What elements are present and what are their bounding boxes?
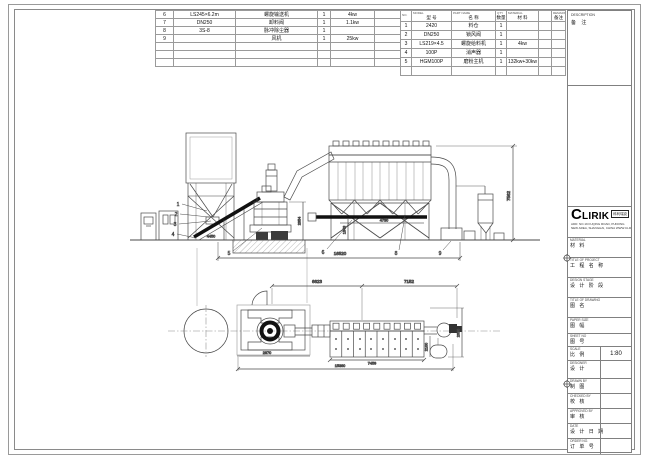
parts-table-right: NO.MODEL型 号PART NAME名 称QTY数量MATERIAL材 料R… xyxy=(400,10,566,76)
titleblock-row-date: DATE 设 计 日 期 xyxy=(568,424,631,439)
parts-cell: 3 xyxy=(401,40,412,49)
parts-cell: 5 xyxy=(401,58,412,67)
parts-cell: 4kw xyxy=(331,11,375,19)
parts-header-cell xyxy=(539,11,552,22)
parts-cell: LS219×4.5 xyxy=(412,40,452,49)
scale-value: 1:80 xyxy=(600,347,631,360)
parts-cell xyxy=(236,59,318,67)
clirik-logo: CLIRIK xyxy=(571,209,609,223)
parts-cell xyxy=(552,49,566,58)
parts-cell: 3S-8 xyxy=(174,27,236,35)
titleblock-row-drawn-by: DRAWN BY 制 图 xyxy=(568,379,631,394)
parts-cell xyxy=(174,51,236,59)
parts-cell: 4kw xyxy=(507,40,539,49)
parts-cell: 1 xyxy=(401,22,412,31)
parts-cell: 25kw xyxy=(331,35,375,43)
parts-cell: 螺旋输送机 xyxy=(236,11,318,19)
parts-cell xyxy=(539,58,552,67)
parts-row-right xyxy=(401,67,566,76)
parts-cell xyxy=(375,11,401,19)
parts-cell xyxy=(375,19,401,27)
parts-cell xyxy=(375,27,401,35)
parts-cell xyxy=(236,43,318,51)
parts-row-right: 12420料仓1 xyxy=(401,22,566,31)
parts-cell xyxy=(331,51,375,59)
parts-cell: 132kw+30kw xyxy=(507,58,539,67)
parts-cell xyxy=(507,22,539,31)
parts-cell: 脉冲除尘器 xyxy=(236,27,318,35)
parts-cell: LS245×6.2m xyxy=(174,11,236,19)
parts-cell: 6 xyxy=(156,11,174,19)
parts-cell: 100P xyxy=(412,49,452,58)
parts-row-left: 6LS245×6.2m螺旋输送机14kw xyxy=(156,11,401,19)
parts-cell: 磨粉主机 xyxy=(452,58,496,67)
parts-cell xyxy=(375,43,401,51)
parts-cell xyxy=(375,51,401,59)
parts-row-left xyxy=(156,43,401,51)
company-address-line2: NEW AREA, SHANGHAI, CHINA WWW.CLIRIK.COM xyxy=(568,227,631,231)
parts-cell: 1 xyxy=(496,49,507,58)
parts-cell xyxy=(552,22,566,31)
parts-cell: 消声器 xyxy=(452,49,496,58)
parts-cell: 1 xyxy=(318,27,331,35)
parts-cell xyxy=(174,43,236,51)
parts-row-left: 7DN250卸料阀11.1kw xyxy=(156,19,401,27)
parts-header-cell: QTY数量 xyxy=(496,11,507,22)
parts-row-right: 2DN250锁风阀1 xyxy=(401,31,566,40)
parts-cell: 1 xyxy=(496,40,507,49)
titleblock-row-order-no: ORDER NO. 订 单 号 xyxy=(568,439,631,454)
parts-cell xyxy=(318,51,331,59)
parts-cell: 料仓 xyxy=(452,22,496,31)
parts-cell xyxy=(539,49,552,58)
parts-cell: 锁风阀 xyxy=(452,31,496,40)
parts-row-left xyxy=(156,59,401,67)
parts-cell xyxy=(552,31,566,40)
parts-cell: 1 xyxy=(318,35,331,43)
titleblock-row-project: TITLE OF PROJECT 工 程 名 称 xyxy=(568,258,631,278)
parts-cell xyxy=(552,67,566,76)
parts-row-left xyxy=(156,51,401,59)
parts-row-left: 83S-8脉冲除尘器1 xyxy=(156,27,401,35)
parts-cell xyxy=(174,59,236,67)
parts-header-cell: PART NAME名 称 xyxy=(452,11,496,22)
parts-header-cell: NO. xyxy=(401,11,412,22)
parts-cell xyxy=(331,27,375,35)
parts-row-right: 5HGM100P磨粉主机1132kw+30kw xyxy=(401,58,566,67)
parts-cell xyxy=(174,35,236,43)
parts-cell xyxy=(452,67,496,76)
logo-box: CLIRIK 科利瑞克 ADD: NO.19 FUQING ROAD, PUDO… xyxy=(568,207,631,238)
parts-header-row: NO.MODEL型 号PART NAME名 称QTY数量MATERIAL材 料R… xyxy=(401,11,566,22)
titleblock-row-material: MATERIAL 材 料 xyxy=(568,238,631,258)
parts-cell xyxy=(318,43,331,51)
parts-cell xyxy=(507,49,539,58)
title-block-spacer xyxy=(568,86,631,207)
parts-cell xyxy=(507,67,539,76)
titleblock-row-drawing-title: TITLE OF DRAWING 图 名 xyxy=(568,298,631,318)
parts-row-right: 4100P消声器1 xyxy=(401,49,566,58)
parts-cell: 风机 xyxy=(236,35,318,43)
parts-cell xyxy=(539,67,552,76)
description-box: DESCRIPTION 备 注 xyxy=(568,11,631,86)
parts-cell xyxy=(375,59,401,67)
parts-cell: 9 xyxy=(156,35,174,43)
parts-cell xyxy=(318,59,331,67)
parts-cell: 螺旋给料机 xyxy=(452,40,496,49)
parts-cell xyxy=(552,40,566,49)
parts-cell: 7 xyxy=(156,19,174,27)
parts-cell: 1 xyxy=(496,31,507,40)
parts-cell: 2 xyxy=(401,31,412,40)
titleblock-row-scale: SCALE 比 例 1:80 xyxy=(568,347,631,361)
parts-cell xyxy=(236,51,318,59)
parts-cell: DN250 xyxy=(412,31,452,40)
parts-cell xyxy=(331,59,375,67)
drawing-sheet: 6LS245×6.2m螺旋输送机14kw7DN250卸料阀11.1kw83S-8… xyxy=(0,0,650,460)
description-label-cn: 备 注 xyxy=(571,19,628,26)
parts-cell xyxy=(156,59,174,67)
title-block: DESCRIPTION 备 注 CLIRIK 科利瑞克 ADD: NO.19 F… xyxy=(567,10,632,453)
parts-cell xyxy=(401,67,412,76)
parts-cell: 1 xyxy=(318,19,331,27)
parts-cell: 1 xyxy=(496,58,507,67)
parts-cell xyxy=(539,22,552,31)
parts-cell xyxy=(507,31,539,40)
parts-cell xyxy=(539,31,552,40)
titleblock-row-approved-by: APPROVED BY 审 核 xyxy=(568,409,631,424)
parts-cell xyxy=(552,58,566,67)
titleblock-row-checked-by: CHECKED BY 校 核 xyxy=(568,394,631,409)
parts-cell: 8 xyxy=(156,27,174,35)
parts-cell: HGM100P xyxy=(412,58,452,67)
parts-cell xyxy=(539,40,552,49)
parts-cell: 1 xyxy=(318,11,331,19)
parts-cell: DN250 xyxy=(174,19,236,27)
parts-cell xyxy=(331,43,375,51)
titleblock-row-designer: DESIGNER 设 计 xyxy=(568,361,631,379)
logo-chinese-chip: 科利瑞克 xyxy=(611,210,629,218)
parts-cell: 4 xyxy=(401,49,412,58)
description-label-en: DESCRIPTION xyxy=(571,13,628,17)
parts-header-cell: MATERIAL材 料 xyxy=(507,11,539,22)
parts-cell xyxy=(156,51,174,59)
parts-cell: 1 xyxy=(496,22,507,31)
parts-cell xyxy=(412,67,452,76)
titleblock-row-stage: DESIGN STAGE 设 计 阶 段 xyxy=(568,278,631,298)
parts-row-left: 9风机125kw xyxy=(156,35,401,43)
titleblock-row-paper-size: PAPER SIZE 图 幅 xyxy=(568,318,631,334)
parts-cell: 1.1kw xyxy=(331,19,375,27)
parts-table-left: 6LS245×6.2m螺旋输送机14kw7DN250卸料阀11.1kw83S-8… xyxy=(155,10,401,67)
parts-cell: 2420 xyxy=(412,22,452,31)
parts-header-cell: MODEL型 号 xyxy=(412,11,452,22)
parts-cell xyxy=(375,35,401,43)
parts-cell xyxy=(156,43,174,51)
parts-cell: 卸料阀 xyxy=(236,19,318,27)
parts-cell xyxy=(496,67,507,76)
parts-row-right: 3LS219×4.5螺旋给料机14kw xyxy=(401,40,566,49)
parts-header-cell: REMARK备注 xyxy=(552,11,566,22)
titleblock-row-sheet-no: SHEET NO 图 号 xyxy=(568,334,631,347)
